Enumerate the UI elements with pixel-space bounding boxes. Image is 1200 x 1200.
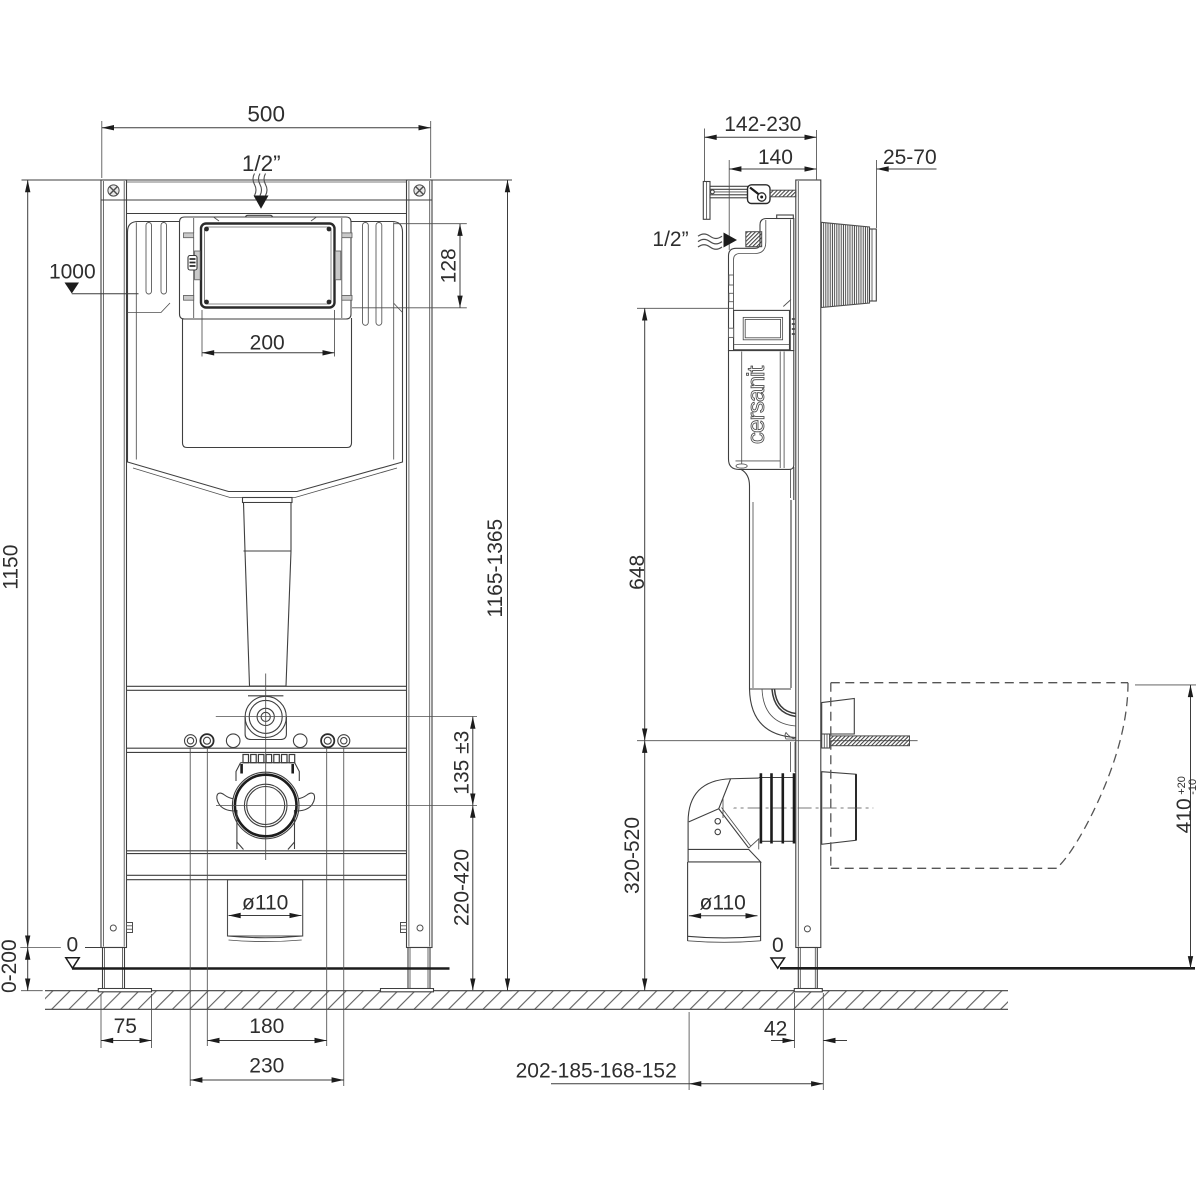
svg-text:1150: 1150	[0, 545, 23, 590]
svg-text:75: 75	[114, 1015, 137, 1038]
svg-text:230: 230	[249, 1055, 284, 1078]
svg-text:648: 648	[626, 555, 649, 590]
svg-text:25-70: 25-70	[883, 146, 937, 169]
svg-text:ø110: ø110	[700, 891, 746, 914]
svg-text:410: 410	[1173, 798, 1196, 833]
svg-text:202-185-168-152: 202-185-168-152	[516, 1060, 677, 1083]
svg-text:135 ±3: 135 ±3	[451, 731, 474, 795]
svg-text:0-200: 0-200	[0, 939, 21, 993]
svg-text:-10: -10	[1187, 779, 1199, 795]
svg-text:0: 0	[772, 934, 784, 957]
svg-text:220-420: 220-420	[451, 849, 474, 926]
svg-text:1165-1365: 1165-1365	[484, 519, 507, 618]
svg-text:320-520: 320-520	[621, 817, 644, 894]
svg-text:ø110: ø110	[242, 891, 288, 914]
svg-text:0: 0	[66, 934, 78, 957]
svg-text:142-230: 142-230	[724, 113, 801, 136]
svg-text:1/2”: 1/2”	[242, 151, 281, 176]
svg-text:140: 140	[758, 146, 793, 169]
svg-text:128: 128	[438, 248, 461, 283]
svg-text:42: 42	[764, 1018, 787, 1041]
svg-text:1/2”: 1/2”	[652, 228, 688, 251]
svg-text:200: 200	[250, 332, 285, 355]
svg-text:500: 500	[247, 102, 285, 127]
svg-text:cersanit: cersanit	[743, 365, 770, 444]
svg-text:180: 180	[249, 1015, 284, 1038]
svg-text:1000: 1000	[49, 261, 96, 284]
